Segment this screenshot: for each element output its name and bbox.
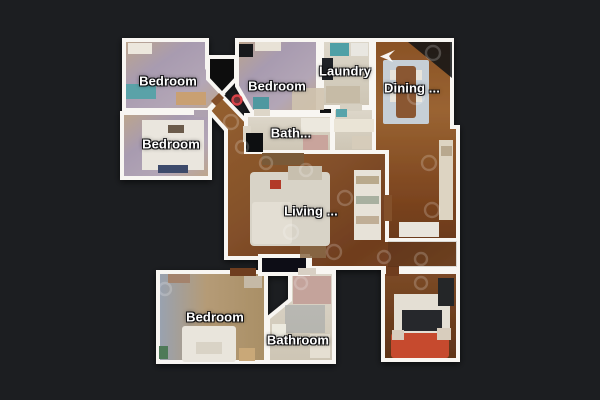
shelf-row <box>356 176 379 184</box>
mosaic-shower-floor <box>293 276 331 304</box>
position-marker[interactable] <box>233 96 242 105</box>
room-label-laundry[interactable]: Laundry <box>319 65 371 78</box>
bed-runner <box>158 165 188 173</box>
floorplan-canvas[interactable]: Bedroom Bedroom Bedroom Laundry Dining .… <box>0 0 600 400</box>
corner-clutter <box>244 276 262 288</box>
room-label-bath[interactable]: Bath... <box>271 127 311 140</box>
couch-pillow <box>437 328 451 340</box>
room-label-bedroom-top-middle[interactable]: Bedroom <box>248 80 306 93</box>
counter-clutter <box>352 136 372 149</box>
console <box>262 153 304 165</box>
counter-item <box>441 146 452 156</box>
washer <box>330 43 349 56</box>
storage-box <box>176 92 206 105</box>
couch-pillow <box>392 330 404 340</box>
room-label-living[interactable]: Living ... <box>284 205 338 218</box>
room-label-bedroom-bottom-left[interactable]: Bedroom <box>186 311 244 324</box>
floor-shadow <box>285 305 325 333</box>
shelf-row <box>356 196 379 204</box>
hall-table <box>300 246 326 258</box>
dryer <box>351 43 368 56</box>
sofa-back-clutter <box>288 166 322 180</box>
bed-folds <box>196 342 222 354</box>
room-label-bedroom-top-left[interactable]: Bedroom <box>139 75 197 88</box>
red-pillow <box>270 180 281 189</box>
dresser <box>128 43 152 54</box>
white-desk <box>399 222 439 237</box>
bed-item <box>168 125 184 133</box>
teal-artwork <box>253 97 269 109</box>
shelf-clutter <box>168 274 190 283</box>
tv <box>402 310 442 331</box>
dresser <box>255 42 281 51</box>
shelf-row <box>356 216 379 224</box>
room-label-bathroom[interactable]: Bathroom <box>267 334 329 347</box>
dark-corner <box>239 44 253 57</box>
den-dark-corner <box>438 278 454 306</box>
room-label-bedroom-mid-left[interactable]: Bedroom <box>142 138 200 151</box>
plant <box>159 346 168 359</box>
laundry-clutter <box>326 86 360 103</box>
room-label-dining[interactable]: Dining ... <box>384 82 440 95</box>
counter <box>334 119 374 132</box>
nook-teal-item <box>336 109 347 117</box>
nightstand <box>239 348 255 361</box>
